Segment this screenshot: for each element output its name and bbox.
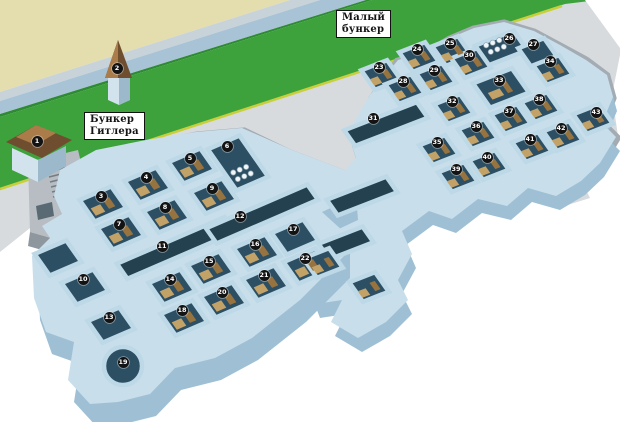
bunker-diagram: Бункер Гитлера Малый бункер 123456789101… (0, 0, 620, 422)
room-marker-29: 29 (429, 65, 440, 76)
room-marker-39: 39 (451, 164, 462, 175)
room-marker-22: 22 (300, 253, 311, 264)
label-small-line2: бункер (342, 24, 385, 36)
label-hitler-line2: Гитлера (90, 126, 139, 138)
room-marker-31: 31 (368, 113, 379, 124)
room-marker-5: 5 (185, 153, 196, 164)
room-marker-7: 7 (114, 219, 125, 230)
room-marker-14: 14 (165, 274, 176, 285)
room-marker-28: 28 (398, 76, 409, 87)
label-hitler-bunker: Бункер Гитлера (84, 112, 145, 140)
room-marker-34: 34 (545, 56, 556, 67)
room-marker-38: 38 (534, 94, 545, 105)
room-marker-36: 36 (471, 121, 482, 132)
room-marker-11: 11 (157, 241, 168, 252)
room-marker-12: 12 (235, 211, 246, 222)
room-marker-10: 10 (78, 274, 89, 285)
room-marker-27: 27 (528, 39, 539, 50)
room-marker-26: 26 (504, 33, 515, 44)
room-marker-6: 6 (222, 141, 233, 152)
label-hitler-line1: Бункер (90, 114, 139, 126)
room-marker-33: 33 (494, 75, 505, 86)
room-marker-32: 32 (447, 96, 458, 107)
room-marker-23: 23 (374, 62, 385, 73)
room-marker-21: 21 (259, 270, 270, 281)
label-small-line1: Малый (342, 12, 385, 24)
room-marker-37: 37 (504, 106, 515, 117)
room-marker-20: 20 (217, 287, 228, 298)
room-marker-2: 2 (112, 63, 123, 74)
room-marker-16: 16 (250, 239, 261, 250)
room-marker-30: 30 (464, 50, 475, 61)
room-marker-35: 35 (432, 137, 443, 148)
room-marker-9: 9 (207, 183, 218, 194)
room-marker-17: 17 (288, 224, 299, 235)
room-marker-13: 13 (104, 312, 115, 323)
room-marker-41: 41 (525, 134, 536, 145)
room-marker-40: 40 (482, 152, 493, 163)
room-marker-4: 4 (141, 172, 152, 183)
room-marker-1: 1 (32, 136, 43, 147)
room-marker-15: 15 (204, 256, 215, 267)
room-marker-3: 3 (96, 191, 107, 202)
room-marker-19: 19 (118, 357, 129, 368)
room-marker-43: 43 (591, 107, 602, 118)
room-marker-24: 24 (412, 44, 423, 55)
room-marker-25: 25 (445, 38, 456, 49)
terrain-illustration (0, 0, 620, 422)
room-marker-18: 18 (177, 305, 188, 316)
label-small-bunker: Малый бункер (336, 10, 391, 38)
room-marker-42: 42 (556, 123, 567, 134)
room-marker-8: 8 (160, 202, 171, 213)
